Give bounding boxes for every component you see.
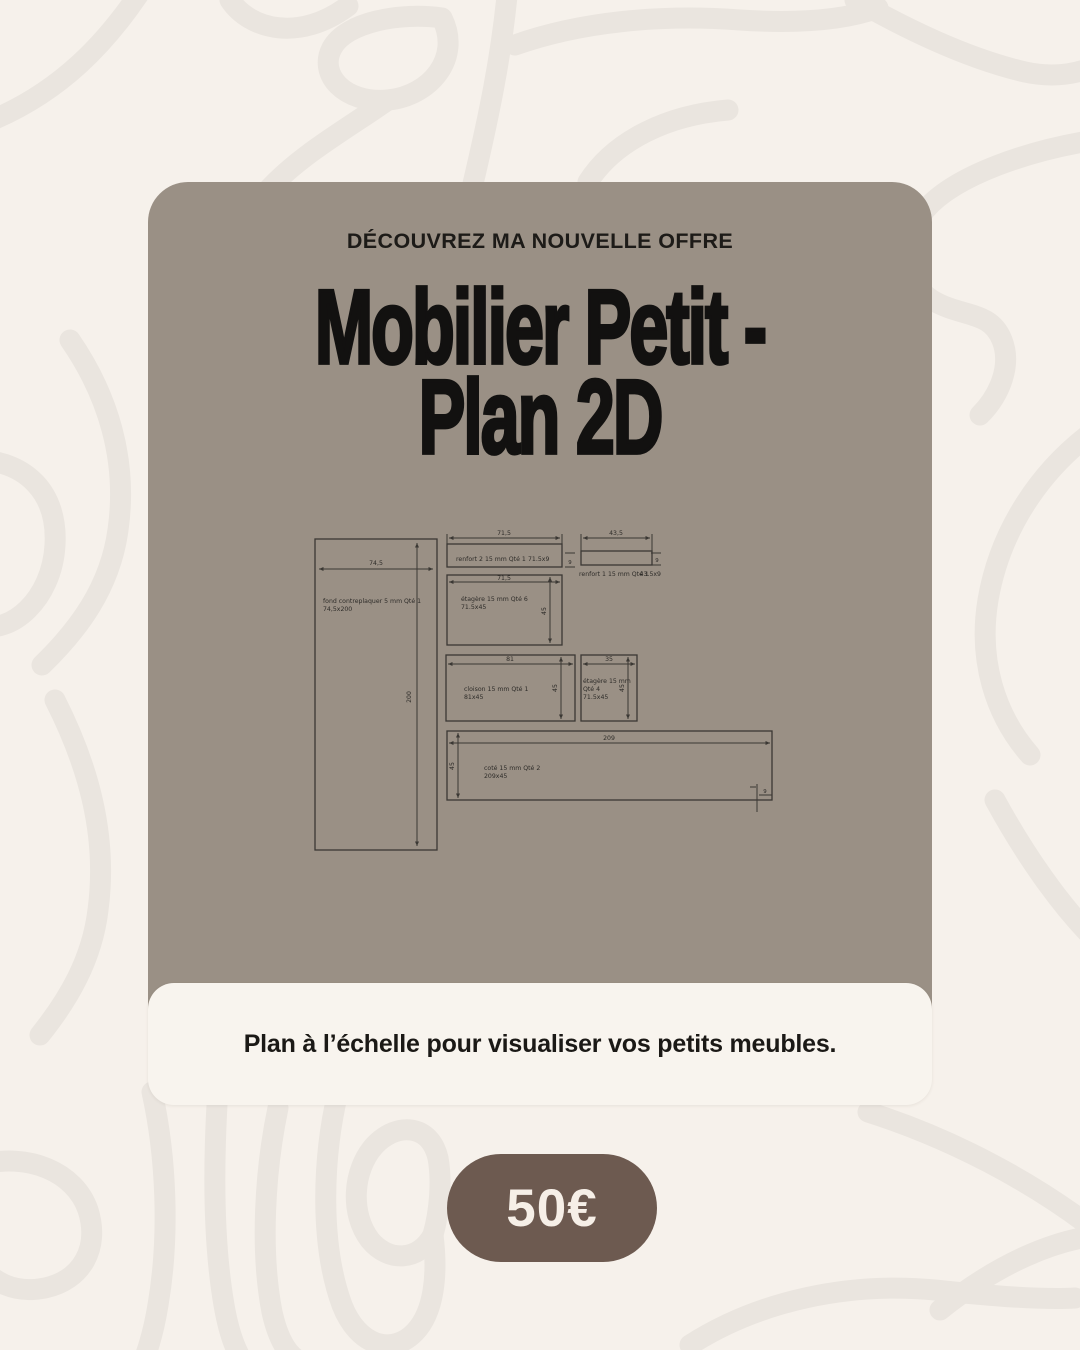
dimension-label: 71,5: [497, 575, 511, 582]
part-size-label: 74,5x200: [323, 606, 352, 613]
part-size-label: 71.5x45: [461, 604, 486, 611]
plan-part-cote: 209 45 coté 15 mm Qté 2 209x45 9: [447, 731, 772, 812]
post-canvas: DÉCOUVREZ MA NOUVELLE OFFRE Mobilier Pet…: [0, 0, 1080, 1350]
squiggle-icon: [855, 0, 1080, 75]
part-outline: [581, 551, 652, 565]
squiggle-icon: [472, 0, 508, 188]
squiggle-icon: [515, 8, 878, 45]
plan-2d-drawing: 74,5 200 fond contreplaquer 5 mm Qté 1 7…: [290, 515, 800, 870]
part-label: fond contreplaquer 5 mm Qté 1: [323, 597, 421, 605]
squiggle-icon: [690, 1288, 1075, 1345]
part-label: renfort 2 15 mm Qté 1: [456, 555, 526, 563]
plan-part-etagere4: 35 45 étagère 15 mm Qté 4 71.5x45: [581, 655, 637, 721]
plan-part-renfort1: 43,5 9 renfort 1 15 mm Qté 1 43.5x9: [579, 530, 661, 578]
dimension-label: 81: [506, 656, 514, 663]
dimension-label: 71,5: [497, 530, 511, 537]
plan-part-fond: 74,5 200 fond contreplaquer 5 mm Qté 1 7…: [315, 539, 437, 850]
page-title: Mobilier Petit - Plan 2D: [148, 282, 932, 463]
offer-card: DÉCOUVREZ MA NOUVELLE OFFRE Mobilier Pet…: [148, 182, 932, 1105]
plan-part-etagere6: 71,5 45 étagère 15 mm Qté 6 71.5x45: [447, 575, 562, 645]
squiggle-icon: [40, 700, 101, 1035]
dimension-label: 9: [568, 560, 572, 566]
price-button[interactable]: 50€: [447, 1154, 657, 1262]
squiggle-icon: [985, 430, 1080, 755]
dimension-label: 35: [605, 656, 613, 663]
squiggle-icon: [0, 460, 55, 627]
squiggle-icon: [356, 1130, 440, 1256]
part-label: cloison 15 mm Qté 1: [464, 685, 528, 693]
part-size-label: 43.5x9: [640, 571, 661, 578]
part-size-label: 209x45: [484, 773, 507, 780]
squiggle-icon: [265, 1108, 310, 1350]
title-line-2: Plan 2D: [148, 372, 932, 462]
squiggle-icon: [995, 800, 1080, 940]
dimension-label: 200: [406, 691, 413, 703]
part-size-label: 71.5x9: [528, 556, 549, 563]
part-label: renfort 1 15 mm Qté 1: [579, 570, 649, 578]
eyebrow-text: DÉCOUVREZ MA NOUVELLE OFFRE: [148, 229, 932, 254]
squiggle-icon: [588, 110, 728, 182]
dimension-label: 45: [552, 684, 559, 692]
squiggle-icon: [328, 16, 448, 100]
part-label: étagère 15 mm: [583, 677, 631, 685]
squiggle-icon: [230, 0, 348, 28]
dimension-label: 45: [619, 684, 626, 692]
part-size-label: 81x45: [464, 694, 483, 701]
dimension-label: 45: [541, 607, 548, 615]
squiggle-icon: [0, 0, 148, 125]
dimension-label: 209: [603, 735, 615, 742]
part-size-label: 71.5x45: [583, 694, 608, 701]
dimension-label: 9: [763, 789, 767, 795]
dimension-label: 45: [449, 762, 456, 770]
caption-box: Plan à l’échelle pour visualiser vos pet…: [148, 983, 932, 1105]
dimension-label: 9: [655, 558, 659, 564]
squiggle-icon: [0, 1161, 92, 1290]
plan-part-renfort2: 71,5 renfort 2 15 mm Qté 1 71.5x9 9: [447, 530, 575, 567]
part-qty-label: Qté 4: [583, 685, 600, 693]
squiggle-icon: [868, 1112, 1080, 1230]
squiggle-icon: [215, 1088, 252, 1350]
squiggle-icon: [268, 100, 388, 190]
squiggle-icon: [140, 1092, 165, 1350]
dimension-label: 43,5: [609, 530, 623, 537]
part-label: étagère 15 mm Qté 6: [461, 595, 528, 603]
plan-part-cloison: 81 45 cloison 15 mm Qté 1 81x45: [446, 655, 575, 721]
caption-text: Plan à l’échelle pour visualiser vos pet…: [244, 1030, 837, 1059]
part-outline: [315, 539, 437, 850]
part-label: coté 15 mm Qté 2: [484, 764, 540, 772]
dimension-label: 74,5: [369, 560, 383, 567]
squiggle-icon: [907, 140, 1080, 415]
